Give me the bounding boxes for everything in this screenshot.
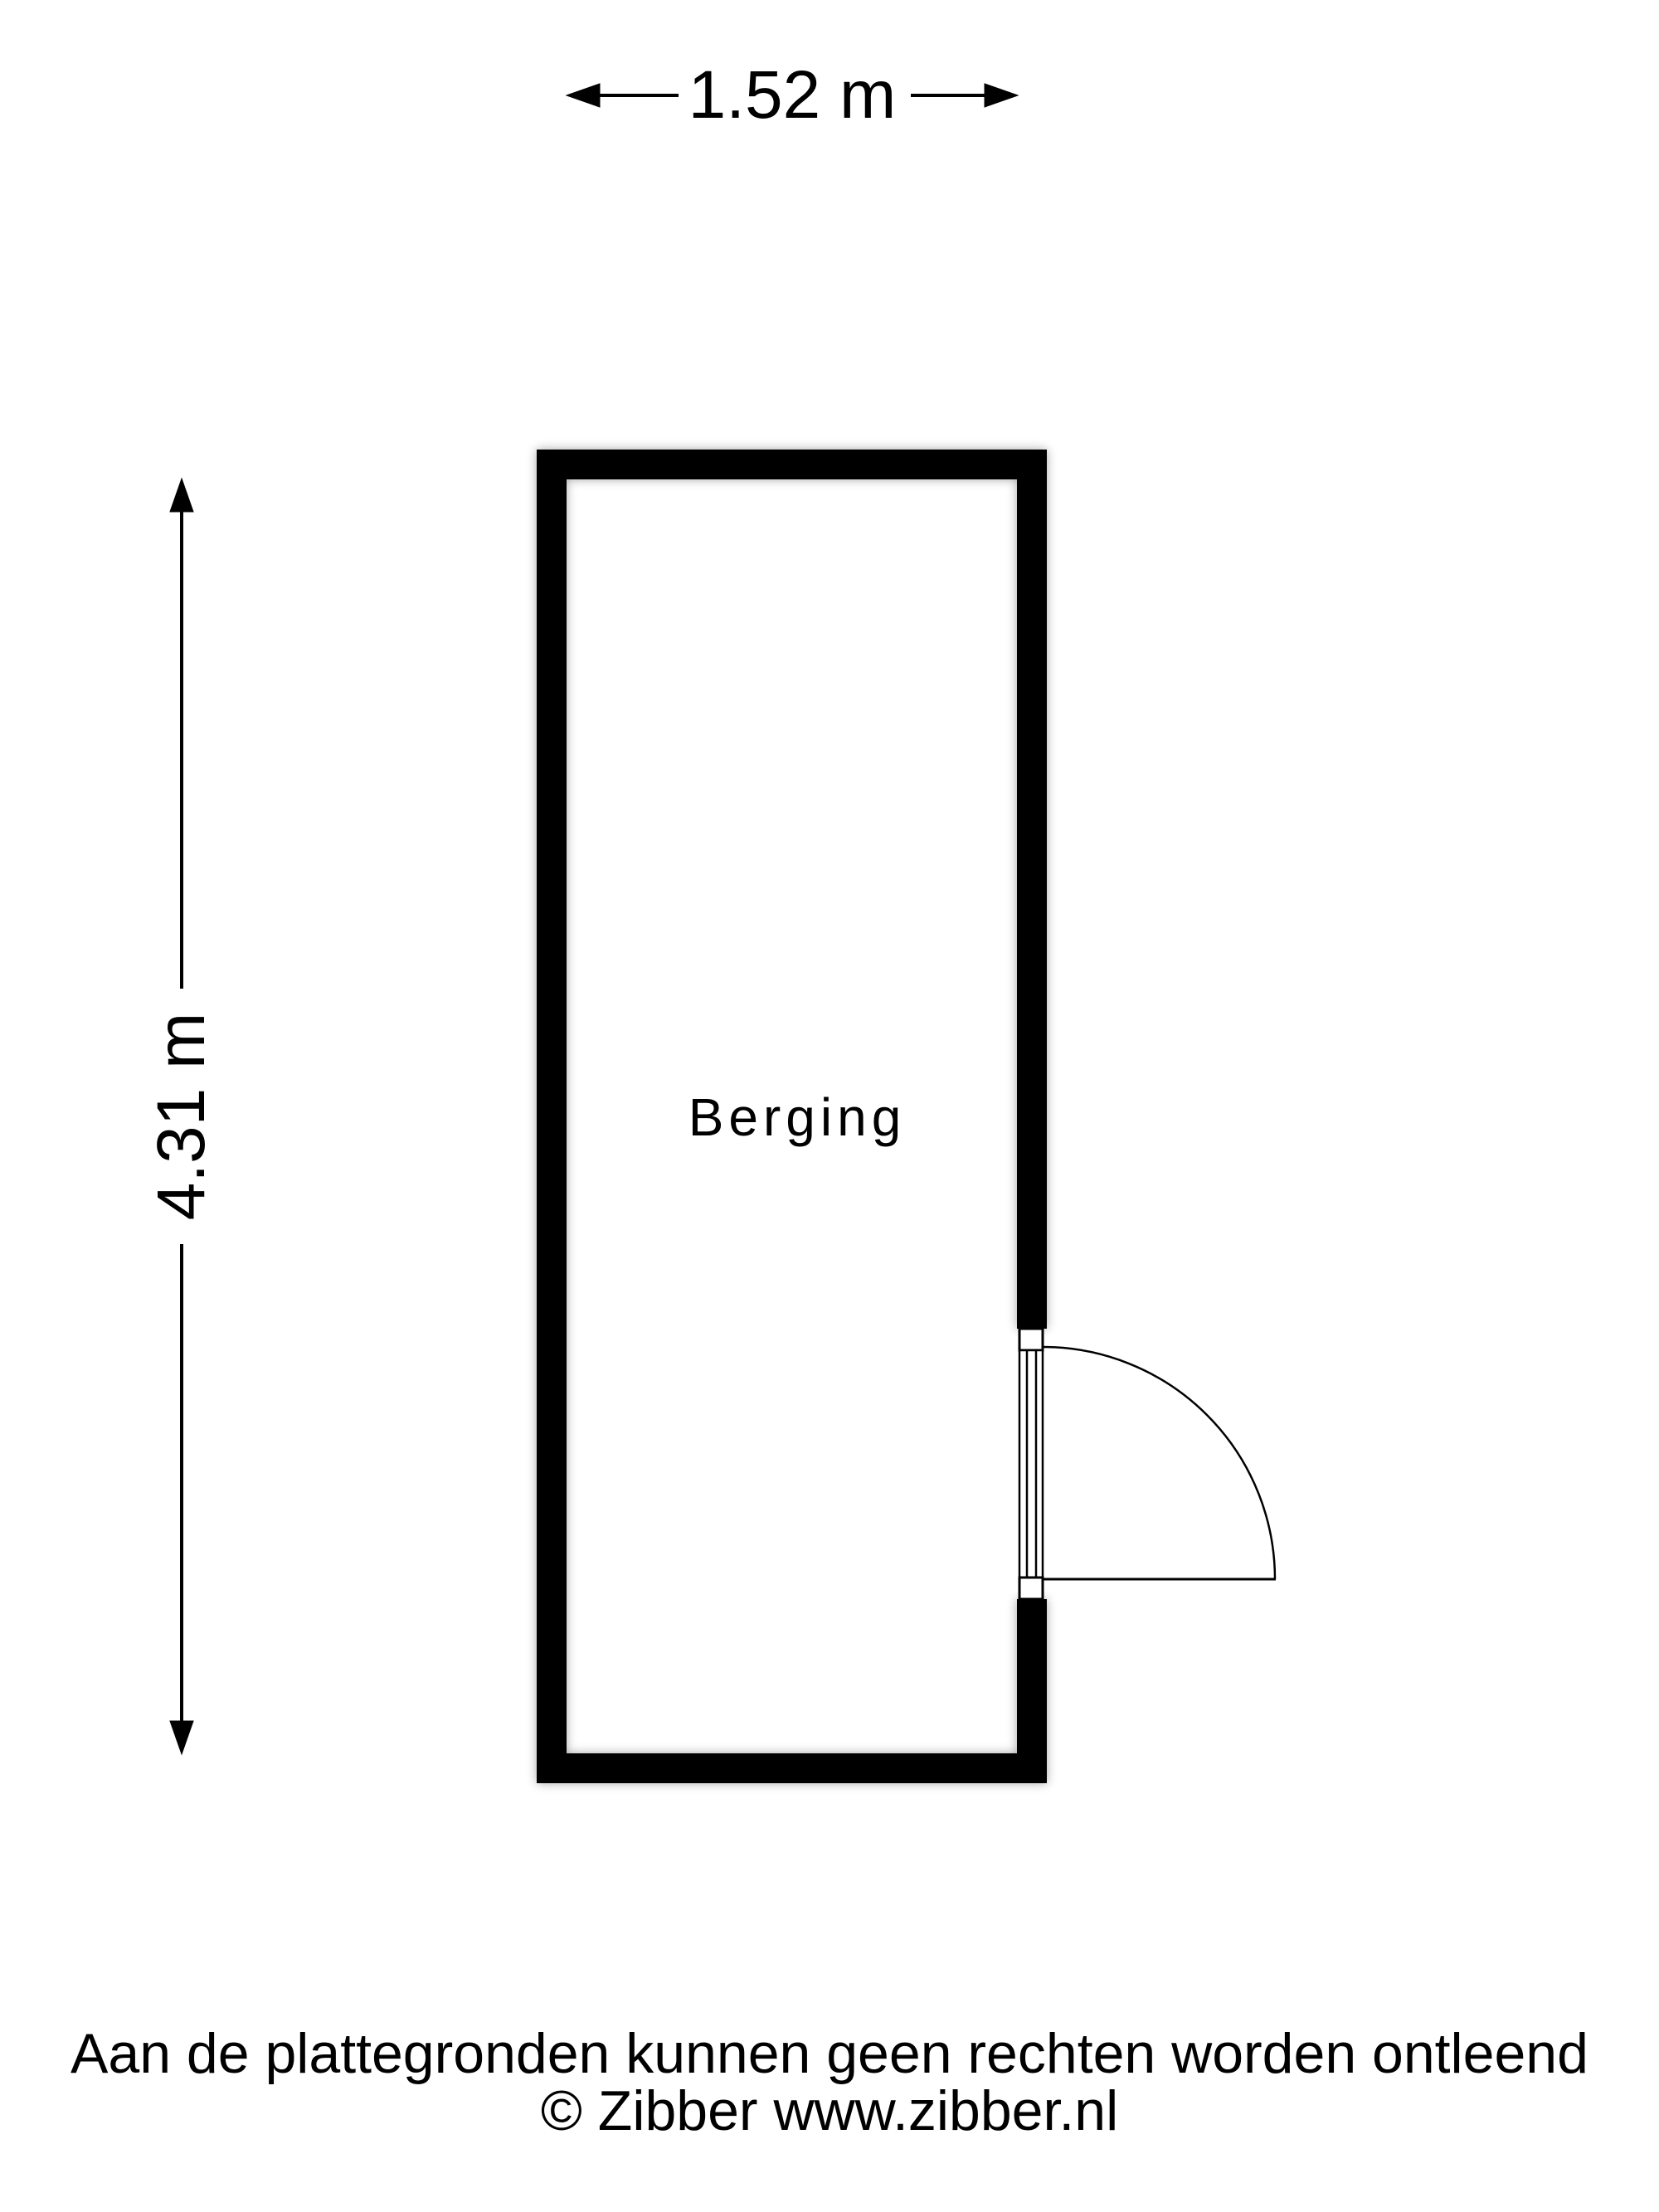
room-label: Berging [631,1082,963,1152]
wall-top [537,450,1047,479]
wall-bottom [537,1753,1047,1783]
door-swing-arc [1043,1347,1275,1579]
footer-disclaimer: Aan de plattegronden kunnen geen rechten… [0,2025,1659,2083]
door-frame-track [1019,1350,1043,1578]
arrow-up-icon [170,479,193,512]
arrow-left-icon [567,84,600,107]
wall-right-upper [1017,450,1047,1329]
arrow-down-icon [170,1721,193,1754]
footer-copyright: © Zibber www.zibber.nl [0,2083,1659,2140]
wall-left [537,450,567,1783]
wall-right-lower [1017,1599,1047,1783]
width-dimension-label: 1.52 m [626,58,958,133]
door [1019,1329,1276,1599]
door-frame-bottom-post [1019,1578,1043,1599]
door-frame-top-post [1019,1329,1043,1350]
arrow-right-icon [985,84,1018,107]
floorplan-canvas: 1.52 m 4.31 m Berging Aan de plattegrond… [0,0,1659,2212]
height-dimension-label: 4.31 m [144,950,219,1282]
